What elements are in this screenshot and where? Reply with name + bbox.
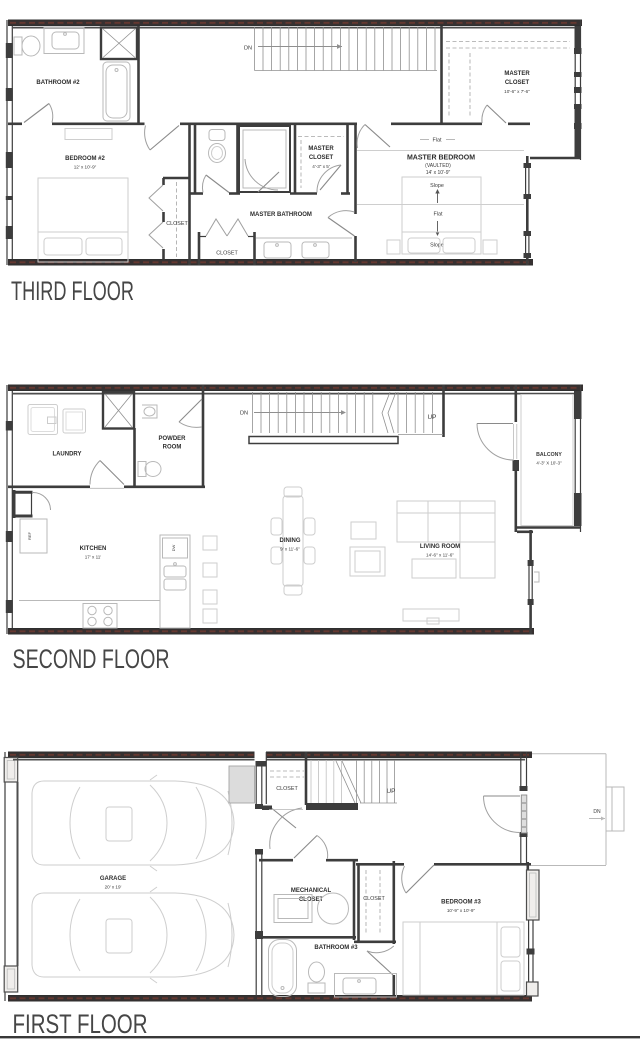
- svg-text:BATHROOM #2: BATHROOM #2: [36, 80, 80, 86]
- svg-text:THIRD FLOOR: THIRD FLOOR: [11, 276, 134, 306]
- svg-text:DW: DW: [171, 544, 176, 551]
- svg-text:SECOND FLOOR: SECOND FLOOR: [13, 644, 170, 674]
- svg-text:MASTER: MASTER: [308, 146, 334, 152]
- svg-text:CLOSET: CLOSET: [363, 896, 385, 902]
- svg-text:LIVING ROOM: LIVING ROOM: [420, 544, 460, 550]
- svg-text:14'-6" x 11'-6": 14'-6" x 11'-6": [426, 553, 454, 558]
- svg-text:Flat: Flat: [433, 138, 442, 144]
- svg-text:12' x 10'-9": 12' x 10'-9": [74, 165, 97, 170]
- svg-text:14' x 10'-9": 14' x 10'-9": [426, 170, 451, 176]
- svg-text:9' x 11'-6": 9' x 11'-6": [280, 547, 300, 552]
- svg-text:MECHANICAL: MECHANICAL: [291, 888, 332, 894]
- svg-text:Flat: Flat: [434, 212, 443, 218]
- svg-text:ROOM: ROOM: [163, 445, 182, 451]
- svg-text:Slope: Slope: [430, 243, 444, 249]
- svg-text:BEDROOM #3: BEDROOM #3: [441, 900, 481, 906]
- svg-text:CLOSET: CLOSET: [309, 155, 334, 161]
- svg-text:CLOSET: CLOSET: [276, 786, 298, 792]
- svg-text:4'-3" X 10'-3": 4'-3" X 10'-3": [536, 461, 562, 466]
- svg-text:20' x 19': 20' x 19': [105, 885, 122, 890]
- svg-text:UP: UP: [387, 788, 396, 795]
- svg-text:MASTER: MASTER: [504, 71, 530, 77]
- svg-text:UP: UP: [428, 414, 437, 421]
- svg-text:BALCONY: BALCONY: [536, 452, 562, 458]
- svg-text:FIRST FLOOR: FIRST FLOOR: [13, 1009, 148, 1039]
- svg-text:(VAULTED): (VAULTED): [425, 163, 451, 169]
- svg-text:KITCHEN: KITCHEN: [80, 546, 107, 552]
- svg-text:BATHROOM #3: BATHROOM #3: [314, 945, 358, 951]
- svg-text:DN: DN: [240, 411, 248, 417]
- svg-text:POWDER: POWDER: [159, 436, 187, 442]
- svg-text:Slope: Slope: [430, 183, 444, 189]
- svg-text:DN: DN: [593, 809, 601, 815]
- svg-text:DN: DN: [244, 46, 252, 52]
- svg-text:BEDROOM #2: BEDROOM #2: [65, 156, 105, 162]
- svg-text:17' x 11': 17' x 11': [85, 555, 102, 560]
- svg-text:DINING: DINING: [280, 538, 301, 544]
- svg-text:4'-3" x 5': 4'-3" x 5': [312, 164, 330, 169]
- svg-text:CLOSET: CLOSET: [166, 221, 188, 227]
- svg-text:REF: REF: [27, 531, 32, 540]
- svg-text:CLOSET: CLOSET: [505, 80, 530, 86]
- svg-text:MASTER BEDROOM: MASTER BEDROOM: [407, 155, 475, 162]
- svg-text:10'-9" x 10'-9": 10'-9" x 10'-9": [447, 908, 476, 913]
- svg-text:10'-6" x 7'-6": 10'-6" x 7'-6": [504, 89, 530, 94]
- svg-text:MASTER BATHROOM: MASTER BATHROOM: [250, 212, 312, 218]
- svg-text:LAUNDRY: LAUNDRY: [52, 452, 81, 458]
- svg-text:CLOSET: CLOSET: [216, 251, 238, 257]
- svg-text:GARAGE: GARAGE: [100, 876, 126, 882]
